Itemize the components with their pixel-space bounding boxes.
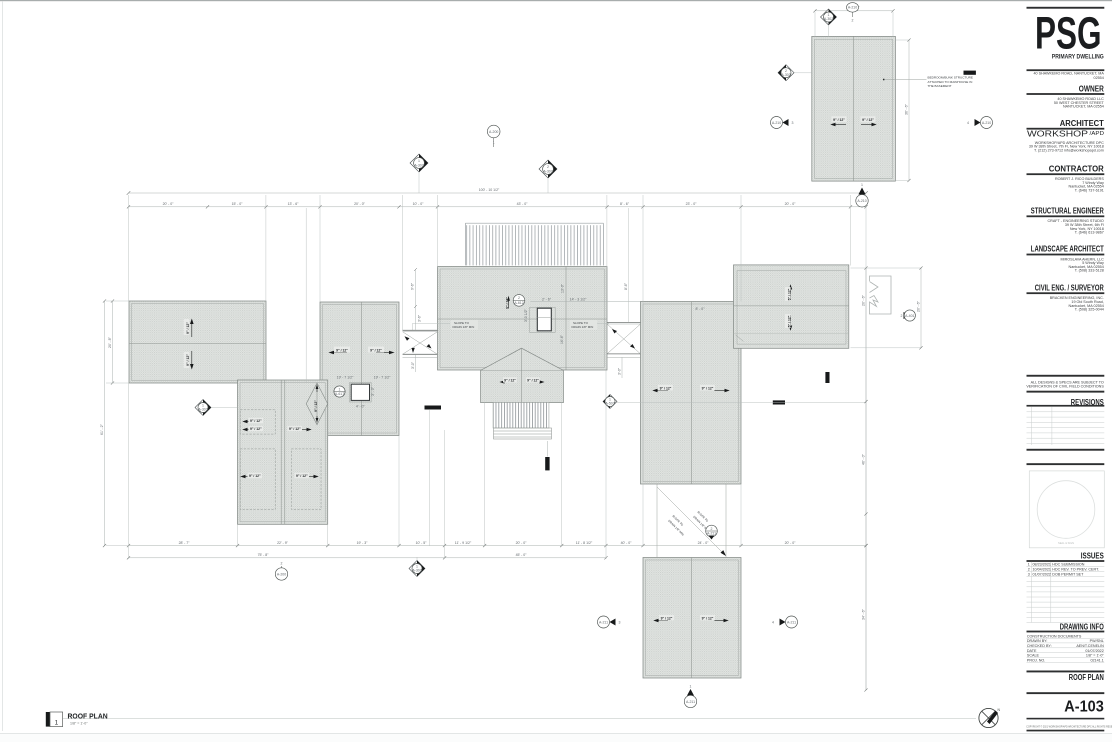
svg-text:3: 3 [619,621,621,625]
svg-text:9" / 12": 9" / 12" [833,118,845,122]
svg-text:A-211: A-211 [787,620,796,624]
svg-text:2: 2 [852,19,854,23]
svg-text:PRIMARY DWELLING: PRIMARY DWELLING [1052,53,1104,60]
svg-text:9" / 12": 9" / 12" [186,322,190,334]
svg-text:20' - 0": 20' - 0" [163,202,175,206]
svg-text:28' - 7": 28' - 7" [179,541,191,545]
svg-text:9" / 12": 9" / 12" [702,386,714,390]
svg-text:A-211: A-211 [686,700,695,704]
svg-text:36' - 6": 36' - 6" [904,103,908,115]
svg-text:08/23/2021: 08/23/2021 [1033,562,1051,566]
svg-text:10/04/2021: 10/04/2021 [1033,567,1051,571]
svg-text:HDC REV. TO PREV. CERT.: HDC REV. TO PREV. CERT. [1052,567,1099,571]
svg-text:1/8" = 1'-0": 1/8" = 1'-0" [70,722,88,726]
svg-text:45' - 0": 45' - 0" [516,553,528,557]
svg-text:20' - 6": 20' - 6" [916,300,920,312]
svg-text:2: 2 [711,527,713,531]
svg-text:AEN/T.CENELIN: AEN/T.CENELIN [1076,644,1104,648]
svg-text:WORKSHOP: WORKSHOP [1027,129,1088,139]
svg-text:9" / 12": 9" / 12" [289,427,301,431]
svg-text:10' - 0": 10' - 0" [413,202,425,206]
svg-text:T. (508) 325-0044: T. (508) 325-0044 [1075,308,1104,312]
svg-text:10' - 5": 10' - 5" [416,541,428,545]
svg-text:9" / 12": 9" / 12" [314,400,318,412]
svg-text:8' - 0": 8' - 0" [696,307,706,311]
svg-text:13'-0": 13'-0" [561,283,565,293]
svg-text:ROOF PLAN: ROOF PLAN [1069,673,1104,682]
svg-text:DRAWN BY:: DRAWN BY: [1027,639,1048,643]
svg-text:CIVIL ENG. / SURVEYOR: CIVIL ENG. / SURVEYOR [1035,283,1104,292]
svg-text:14' - 3 1/2": 14' - 3 1/2" [570,298,587,302]
svg-text:20' - 0": 20' - 0" [785,541,797,545]
svg-text:3' - 0": 3' - 0" [371,386,375,396]
svg-text:9" / 12": 9" / 12" [862,118,874,122]
svg-text:CONTRACTOR: CONTRACTOR [1049,164,1104,173]
svg-text:A-210: A-210 [982,121,991,125]
svg-text:9'-6": 9'-6" [411,282,415,290]
svg-text:DOB PERMIT SET: DOB PERMIT SET [1052,573,1084,577]
svg-text:A-612: A-612 [514,301,523,305]
svg-text:22' - 9": 22' - 9" [277,541,289,545]
svg-text:3'-0 1/2": 3'-0 1/2" [524,308,528,322]
svg-text:T. (646) 737-6191: T. (646) 737-6191 [1075,188,1104,192]
svg-text:A-211: A-211 [599,620,608,624]
svg-text:100' - 10 1/2": 100' - 10 1/2" [479,188,500,192]
svg-text:A-210: A-210 [772,121,781,125]
svg-text:DRAIN 1/8" MIN: DRAIN 1/8" MIN [453,325,475,329]
svg-text:01/07/2022: 01/07/2022 [1033,573,1051,577]
svg-text:A-302: A-302 [412,569,421,573]
svg-text:A-302: A-302 [543,169,552,173]
svg-text:THE BASEMENT: THE BASEMENT [928,84,952,88]
svg-text:20' - 0": 20' - 0" [785,202,797,206]
svg-text:15' - 0": 15' - 0" [232,202,244,206]
svg-text:9" / 12": 9" / 12" [702,616,714,620]
svg-text:43' - 0": 43' - 0" [517,202,529,206]
svg-text:LANDSCAPE ARCHITECT: LANDSCAPE ARCHITECT [1031,245,1104,254]
svg-text:DATE: DATE [1027,649,1037,653]
svg-text:02141.1: 02141.1 [1090,659,1103,663]
svg-text:9" / 12": 9" / 12" [661,616,673,620]
svg-text:9" / 12": 9" / 12" [370,348,382,352]
svg-text:A-210: A-210 [848,6,857,10]
svg-text:2: 2 [518,296,520,300]
svg-text:11' - 8 1/2": 11' - 8 1/2" [576,541,593,545]
svg-text:2: 2 [1028,567,1030,571]
svg-text:3'-6": 3'-6" [418,314,422,322]
svg-text:9" / 12": 9" / 12" [336,348,348,352]
svg-text:CONSTRUCTION DOCUMENTS: CONSTRUCTION DOCUMENTS [1027,635,1082,639]
svg-text:3: 3 [792,121,794,125]
svg-text:DRAWING INFO: DRAWING INFO [1060,622,1104,631]
svg-text:24' - 0": 24' - 0" [698,541,710,545]
svg-text:13' - 6": 13' - 6" [288,202,300,206]
svg-text:9" / 12": 9" / 12" [249,474,261,478]
svg-text:OWNER: OWNER [1079,84,1104,93]
svg-text:DRAIN 1/8" MIN: DRAIN 1/8" MIN [572,325,594,329]
svg-text:3: 3 [1028,573,1030,577]
svg-text:HDC SUBMISSION: HDC SUBMISSION [1052,562,1085,566]
svg-text:1: 1 [493,141,495,145]
svg-text:ROOF PLAN: ROOF PLAN [68,711,108,720]
svg-text:20' - 6": 20' - 6" [861,294,865,306]
svg-text:01/07/2022: 01/07/2022 [1085,649,1103,653]
svg-text:ISSUES: ISSUES [1081,551,1105,560]
svg-text:19' - 3": 19' - 3" [357,541,369,545]
svg-text:34' - 6": 34' - 6" [861,608,865,620]
svg-text:2: 2 [901,314,903,318]
svg-text:PROJ. NO.: PROJ. NO. [1027,659,1045,663]
svg-text:A-401: A-401 [905,314,914,318]
svg-text:T. (646) 613-9867: T. (646) 613-9867 [1075,231,1104,235]
svg-text:SCALE: SCALE [1027,654,1040,658]
svg-text:3'-0": 3'-0" [617,367,621,375]
svg-text:A-617: A-617 [335,392,344,396]
svg-text:9" / 12": 9" / 12" [186,354,190,366]
svg-text:1: 1 [690,685,692,689]
svg-text:11' - 9 1/2": 11' - 9 1/2" [455,541,472,545]
svg-text:9" / 12": 9" / 12" [296,474,308,478]
svg-text:9" / 12": 9" / 12" [527,378,539,382]
svg-text:4: 4 [772,621,774,625]
svg-text:A-302: A-302 [414,163,423,167]
svg-text:20' - 0": 20' - 0" [516,541,528,545]
svg-text:9" / 12": 9" / 12" [250,427,262,431]
svg-text:VERIFICATION OF CIVIL FIELD CO: VERIFICATION OF CIVIL FIELD CONDITIONS [1026,385,1104,389]
svg-text:2: 2 [281,562,283,566]
svg-text:3'-0": 3'-0" [411,361,415,369]
svg-text:1: 1 [861,183,863,187]
svg-text:19' - 7 1/2": 19' - 7 1/2" [374,376,391,380]
svg-text:40' - 0": 40' - 0" [621,541,633,545]
svg-text:8'-6": 8'-6" [624,282,628,290]
svg-text:5" / 12": 5" / 12" [787,315,791,327]
svg-text:A-211: A-211 [707,532,716,536]
svg-text:A-103: A-103 [1064,699,1104,716]
svg-text:20' - 8": 20' - 8" [108,336,112,348]
svg-text:1/8" = 1'-0": 1/8" = 1'-0" [1086,654,1105,658]
svg-text:19' - 7 1/2": 19' - 7 1/2" [337,376,354,380]
svg-text:NANTUCKET, MA 02554: NANTUCKET, MA 02554 [1063,105,1104,109]
svg-text:20' - 0": 20' - 0" [354,202,366,206]
svg-text:8' - 6": 8' - 6" [620,202,630,206]
svg-text:T. (508) 333-5128: T. (508) 333-5128 [1075,269,1104,273]
svg-text:CHECKED BY:: CHECKED BY: [1027,644,1052,648]
svg-text:T. (212) 273-9712 info@works: T. (212) 273-9712 info@workshopapd.com [1034,149,1104,153]
svg-text:9" / 12": 9" / 12" [250,419,262,423]
svg-text:9" / 12": 9" / 12" [505,297,509,309]
svg-text:75' - 8": 75' - 8" [258,553,270,557]
svg-text:2' - 6": 2' - 6" [542,298,552,302]
svg-text:61' - 2": 61' - 2" [100,423,104,435]
svg-text:16'-6": 16'-6" [560,334,564,344]
svg-text:4: 4 [967,121,969,125]
svg-text:ARCHITECT: ARCHITECT [1060,119,1104,128]
svg-text:1: 1 [55,720,59,727]
svg-text:A-302: A-302 [824,17,833,21]
svg-text:A-303: A-303 [781,73,790,77]
svg-text:A-503: A-503 [605,402,614,406]
svg-text:4' - 0": 4' - 0" [356,404,366,408]
svg-text:STRUCTURAL ENGINEER: STRUCTURAL ENGINEER [1031,207,1104,216]
svg-text:1: 1 [339,387,341,391]
svg-text:PW/SNL: PW/SNL [1090,639,1104,643]
svg-text:1: 1 [1028,562,1030,566]
svg-text:23' - 0": 23' - 0" [686,202,698,206]
svg-text:A-210: A-210 [857,199,866,203]
svg-text:PSG: PSG [1035,8,1102,59]
svg-text:SEAL & SIGN: SEAL & SIGN [1058,541,1074,545]
svg-text:A-200: A-200 [489,130,498,134]
svg-text:A-200: A-200 [277,572,286,576]
svg-text:5" / 12": 5" / 12" [787,288,791,300]
svg-text:02554: 02554 [1094,76,1104,80]
svg-text:/APD: /APD [1090,131,1105,137]
svg-text:COPYRIGHT © 2021 WORKSHOP/APD: COPYRIGHT © 2021 WORKSHOP/APD ARCHITECTU… [1026,725,1112,728]
svg-text:9" / 12": 9" / 12" [660,386,672,390]
svg-text:46' - 0": 46' - 0" [861,453,865,465]
svg-text:A-303: A-303 [198,408,207,412]
svg-text:9" / 12": 9" / 12" [504,378,516,382]
